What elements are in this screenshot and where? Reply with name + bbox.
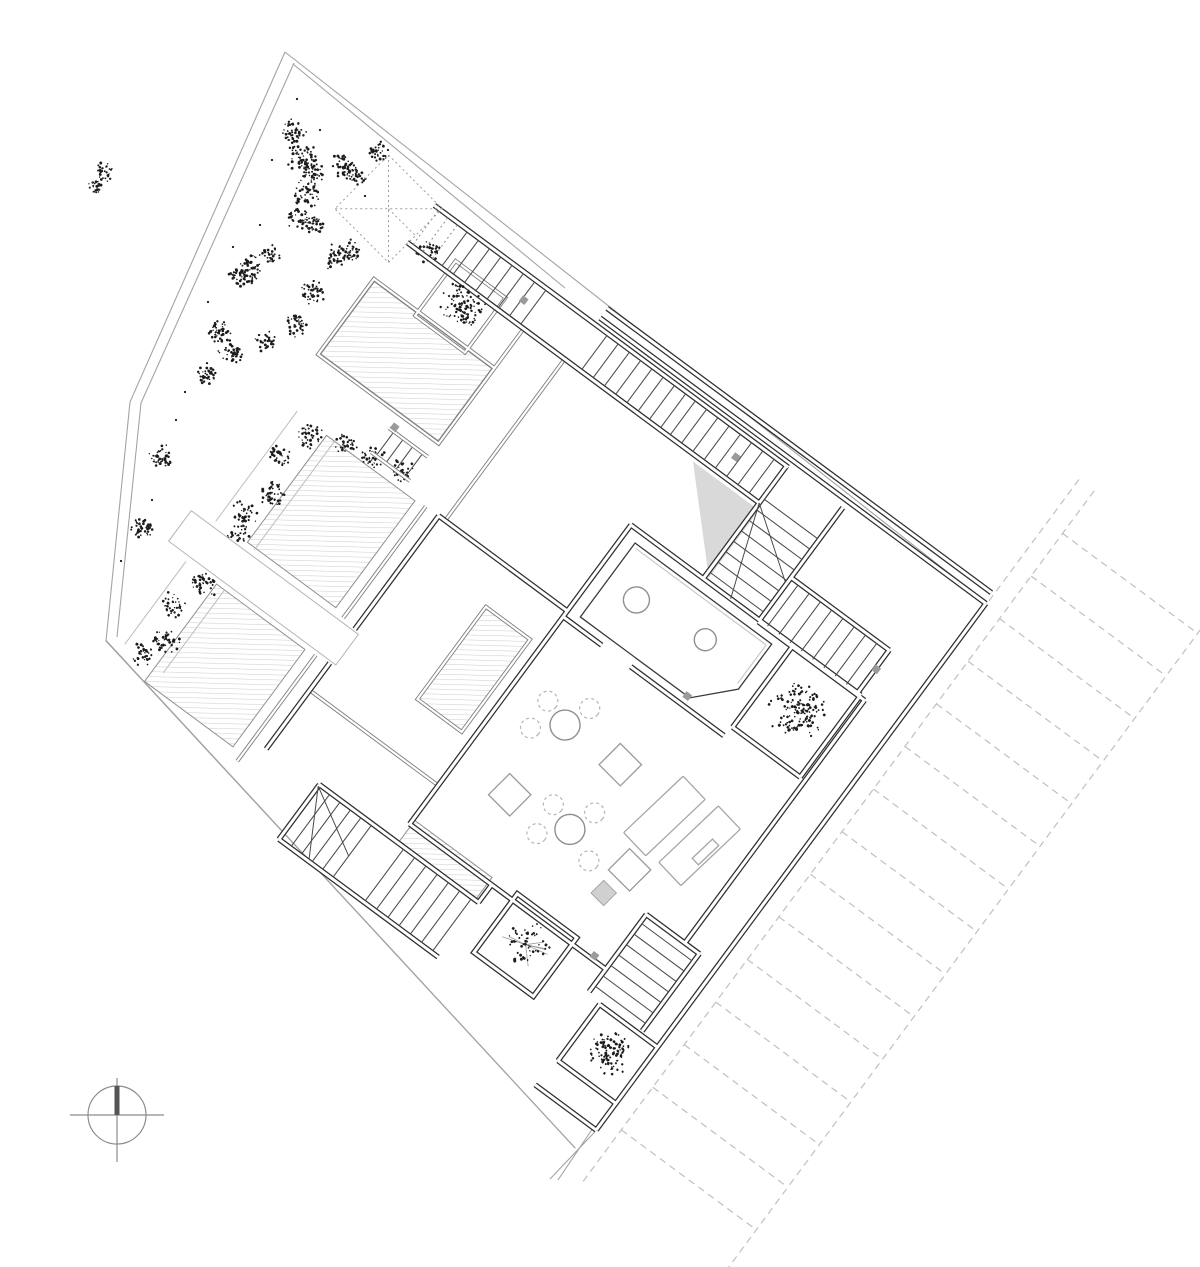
tread-west-flight bbox=[377, 858, 415, 909]
floor-plan-canvas bbox=[0, 0, 1200, 1267]
tread-west-flight bbox=[433, 899, 471, 950]
tread-right-room bbox=[779, 593, 809, 634]
side-table bbox=[591, 880, 616, 905]
north-compass bbox=[70, 1078, 164, 1162]
tread-winder bbox=[312, 810, 350, 861]
tread-west-flight bbox=[399, 874, 437, 925]
parking-divider bbox=[653, 1087, 788, 1187]
lounge-cushion bbox=[692, 839, 719, 865]
chair-dashed bbox=[523, 820, 551, 848]
tread-right-room bbox=[824, 627, 854, 668]
tread-core bbox=[764, 499, 817, 538]
parking-divider bbox=[621, 1130, 756, 1230]
tread-west-flight bbox=[365, 849, 403, 900]
tread-right-room bbox=[790, 602, 820, 643]
tread-right-room bbox=[801, 610, 831, 651]
shade-triangle bbox=[643, 461, 759, 577]
chair-dashed bbox=[516, 714, 544, 742]
square-stool bbox=[488, 774, 530, 816]
parking-divider bbox=[1031, 576, 1166, 676]
tread-west-flight bbox=[388, 866, 426, 917]
door-marker bbox=[519, 295, 529, 305]
tread-garden-steps bbox=[406, 455, 421, 476]
tread-garden-steps bbox=[387, 440, 402, 461]
tread-winder bbox=[302, 802, 340, 853]
lounge-chair bbox=[624, 776, 706, 856]
parking-divider bbox=[905, 746, 1040, 846]
lounge-chair bbox=[659, 806, 741, 886]
parking-divider bbox=[968, 661, 1103, 761]
chair-dashed bbox=[534, 687, 562, 715]
tread-winder bbox=[291, 795, 329, 846]
tread-right-room bbox=[846, 643, 876, 684]
parking-divider bbox=[873, 789, 1008, 889]
parking-divider bbox=[716, 1002, 851, 1102]
tread-entry-dotted bbox=[432, 225, 457, 259]
parking-divider bbox=[842, 832, 977, 932]
tread-right-room bbox=[813, 618, 843, 659]
counter-slab bbox=[580, 543, 771, 718]
compass-north-needle bbox=[115, 1086, 120, 1115]
tread-west-flight bbox=[410, 883, 448, 934]
southwest-hatch-strip bbox=[397, 820, 492, 901]
tread-west-flight bbox=[422, 891, 460, 942]
tread-garden-steps bbox=[377, 433, 392, 454]
parking-divider bbox=[779, 917, 914, 1017]
parking-divider bbox=[1063, 533, 1198, 633]
tread-garden-steps bbox=[397, 448, 412, 469]
tread-south bbox=[603, 976, 653, 1013]
parking-divider bbox=[747, 959, 882, 1059]
parking-divider bbox=[1000, 619, 1135, 719]
counter-unit bbox=[580, 543, 771, 718]
tread-south bbox=[619, 955, 669, 992]
tread-south bbox=[626, 945, 676, 982]
tread-core bbox=[757, 510, 810, 549]
boundary-southwest-diagonal bbox=[30, 641, 653, 1149]
chair-dashed bbox=[576, 694, 604, 722]
parking-divider bbox=[684, 1045, 819, 1145]
parking-rail bbox=[988, 480, 1079, 603]
parking-divider bbox=[810, 874, 945, 974]
chair-dashed bbox=[539, 791, 567, 819]
square-stool bbox=[599, 743, 641, 785]
chair-dashed bbox=[581, 799, 609, 827]
tread-core bbox=[726, 552, 779, 591]
tread-entry-dotted bbox=[413, 211, 438, 245]
door-marker bbox=[731, 452, 741, 462]
building-group bbox=[0, 28, 1200, 1267]
chair-dashed bbox=[575, 847, 603, 875]
parking-divider bbox=[936, 704, 1071, 804]
tread-winder bbox=[323, 818, 361, 869]
tread-south bbox=[611, 966, 661, 1003]
site-plan-svg bbox=[0, 0, 1200, 1267]
tread-entry-dotted bbox=[423, 218, 448, 252]
tread-right-room bbox=[835, 635, 865, 676]
